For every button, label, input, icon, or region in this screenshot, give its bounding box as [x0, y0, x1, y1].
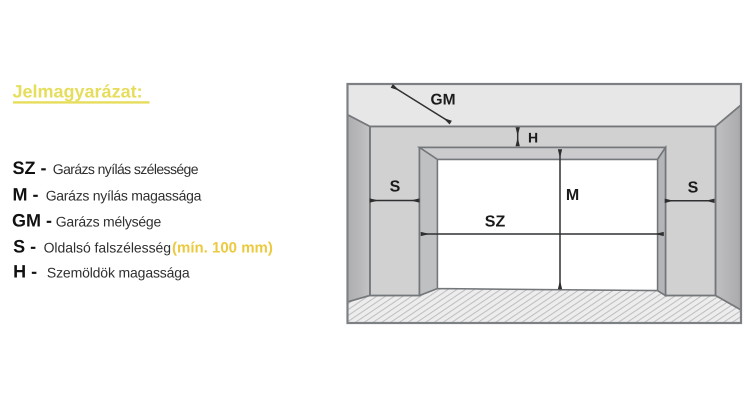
svg-text:S: S [390, 179, 401, 196]
svg-text:M -: M - [13, 185, 39, 205]
svg-text:Garázs mélysége: Garázs mélysége [56, 213, 162, 229]
svg-text:GM: GM [431, 91, 456, 108]
svg-text:Garázs nyílás szélessége: Garázs nyílás szélessége [53, 161, 199, 177]
svg-text:SZ: SZ [485, 213, 506, 230]
svg-text:S -: S - [13, 236, 36, 256]
svg-text:H -: H - [13, 262, 37, 282]
svg-text:S: S [688, 180, 699, 197]
svg-text:GM -: GM - [12, 210, 52, 230]
svg-text:SZ -: SZ - [13, 158, 47, 178]
svg-text:(mín. 100 mm): (mín. 100 mm) [172, 239, 273, 256]
svg-text:M: M [566, 187, 579, 204]
svg-text:Garázs nyílás magassága: Garázs nyílás magassága [46, 188, 202, 204]
svg-text:Jelmagyarázat:: Jelmagyarázat: [13, 82, 143, 102]
svg-text:Oldalsó falszélesség: Oldalsó falszélesség [44, 239, 171, 255]
svg-text:H: H [528, 130, 538, 146]
svg-text:Szemöldök magassága: Szemöldök magassága [47, 265, 190, 281]
